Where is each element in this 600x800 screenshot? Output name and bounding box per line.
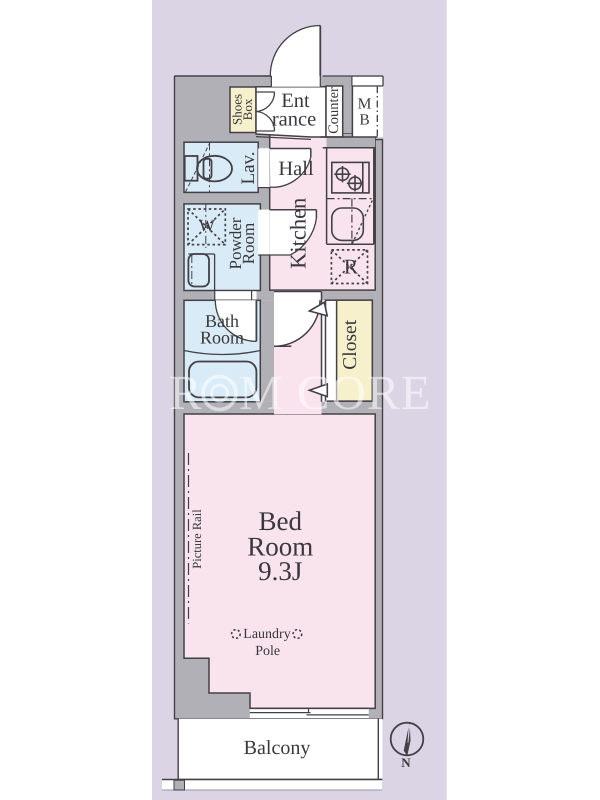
svg-text:W: W [199, 216, 216, 235]
svg-text:Box: Box [240, 98, 255, 120]
svg-text:9.3J: 9.3J [258, 556, 302, 586]
svg-text:Room: Room [239, 223, 258, 265]
svg-text:Laundry: Laundry [243, 627, 290, 642]
svg-text:N: N [401, 755, 411, 770]
svg-text:Balcony: Balcony [244, 737, 311, 759]
svg-text:Picture Rail: Picture Rail [190, 509, 204, 569]
svg-text:Kitchen: Kitchen [286, 198, 311, 269]
svg-text:Pole: Pole [255, 644, 280, 659]
svg-text:R: R [344, 255, 358, 279]
svg-text:R: R [169, 365, 203, 420]
svg-text:M CORE: M CORE [239, 365, 432, 420]
svg-text:M: M [358, 96, 372, 113]
svg-text:Counter: Counter [326, 87, 342, 134]
svg-text:rance: rance [272, 109, 316, 131]
svg-text:Hall: Hall [278, 158, 314, 180]
svg-text:Room: Room [200, 328, 244, 348]
svg-text:B: B [359, 112, 369, 129]
svg-text:Closet: Closet [340, 319, 361, 369]
svg-text:Lav.: Lav. [238, 151, 259, 184]
